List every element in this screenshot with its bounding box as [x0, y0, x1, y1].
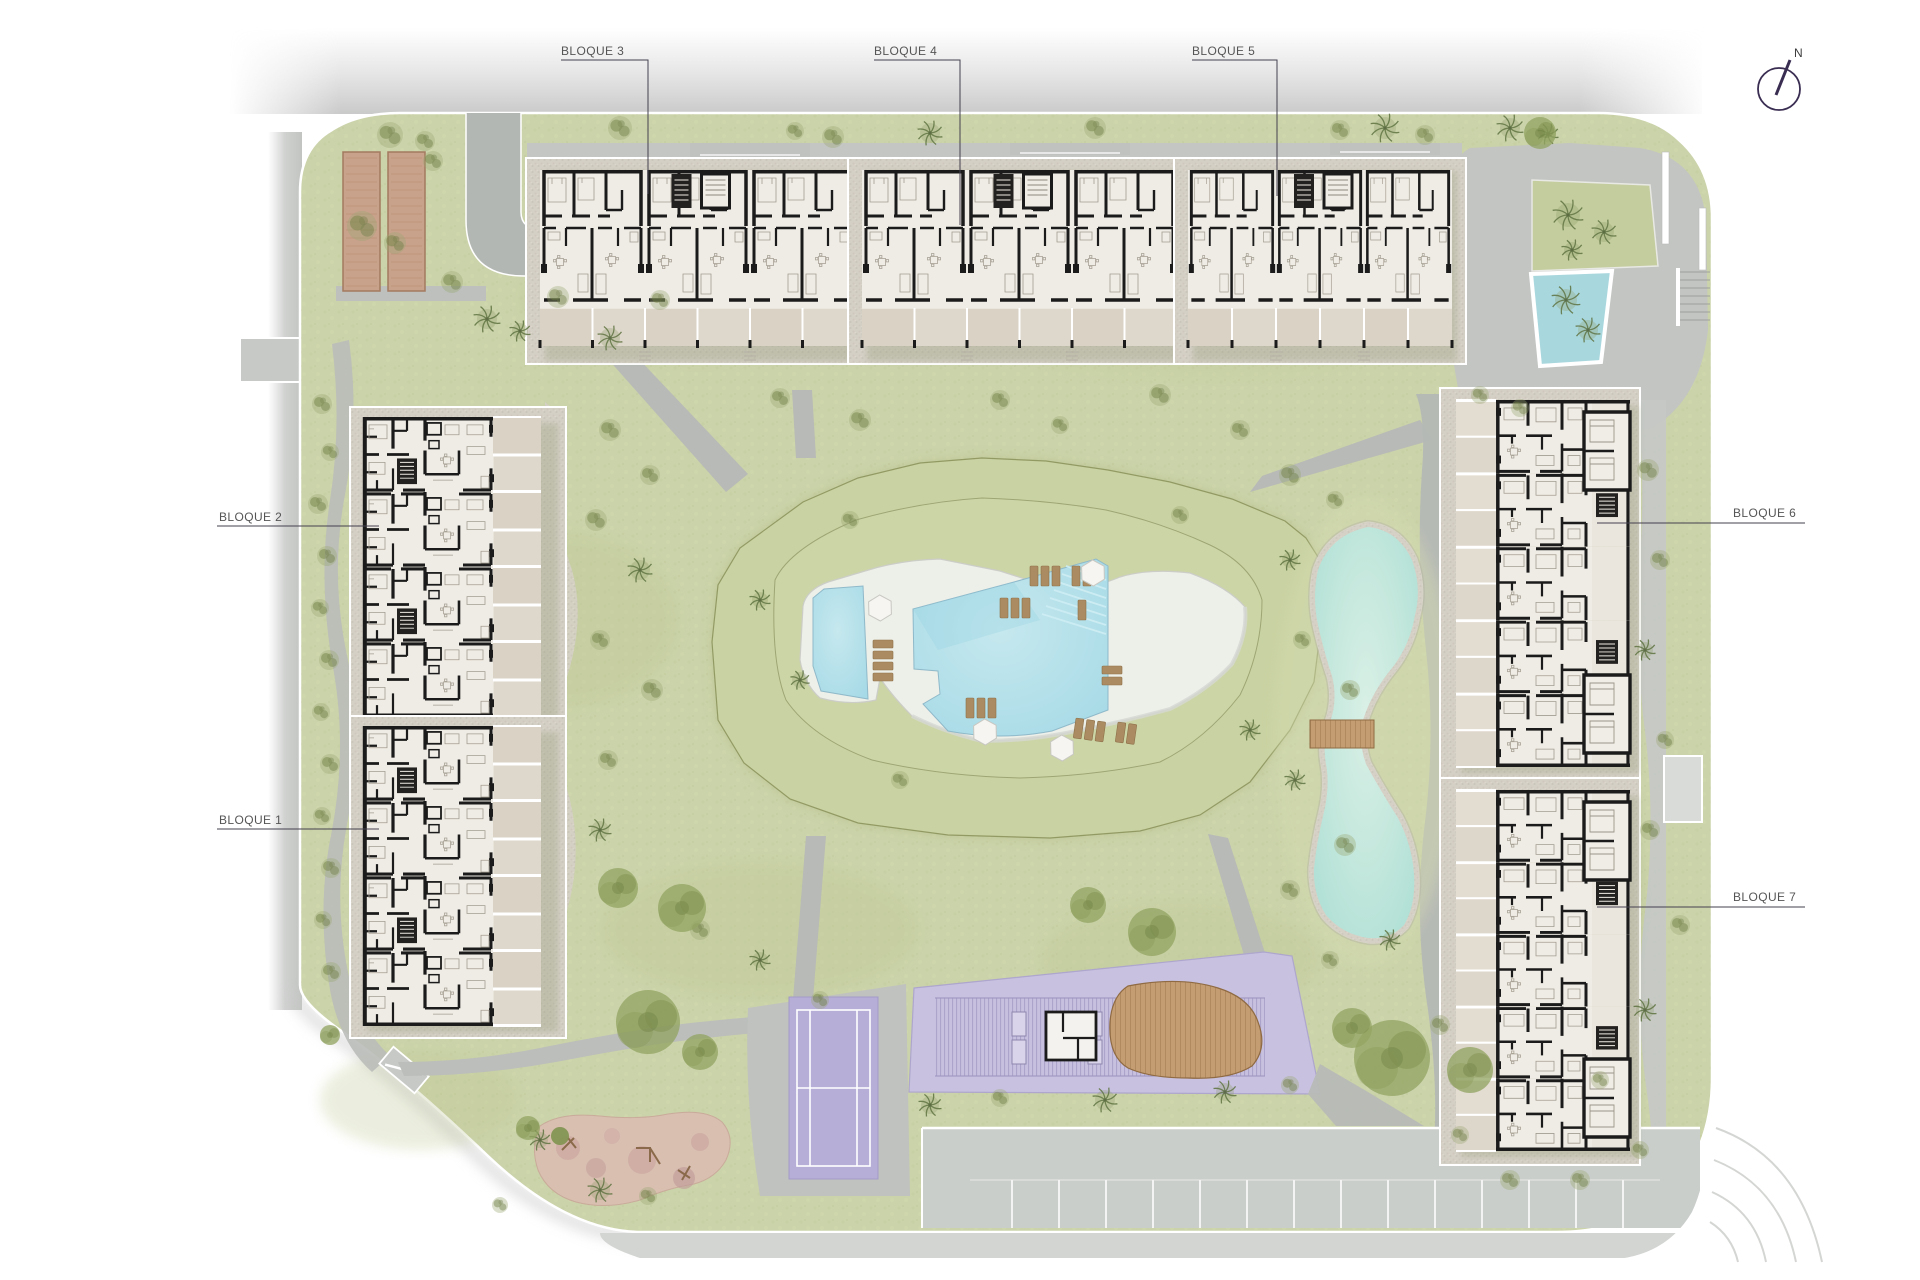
- svg-text:BLOQUE 2: BLOQUE 2: [219, 510, 282, 524]
- svg-text:BLOQUE 6: BLOQUE 6: [1733, 506, 1796, 520]
- svg-text:BLOQUE 7: BLOQUE 7: [1733, 890, 1796, 904]
- svg-text:BLOQUE 4: BLOQUE 4: [874, 44, 937, 58]
- svg-text:BLOQUE 3: BLOQUE 3: [561, 44, 624, 58]
- svg-text:BLOQUE 1: BLOQUE 1: [219, 813, 282, 827]
- svg-text:N: N: [1794, 46, 1803, 60]
- svg-text:BLOQUE 5: BLOQUE 5: [1192, 44, 1255, 58]
